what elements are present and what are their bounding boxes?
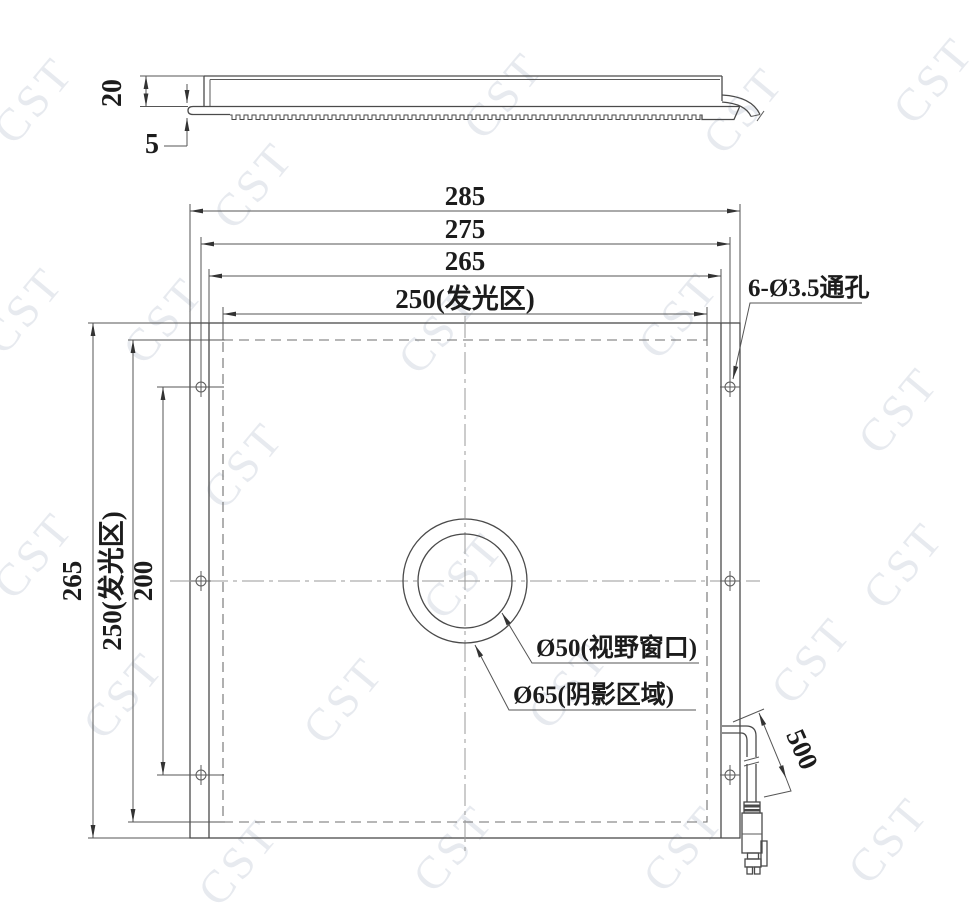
watermark-text: CST [193,412,294,519]
plate-left-cap [188,107,230,115]
connector-foot [745,859,761,867]
dim-500-label: 500 [780,725,824,774]
watermark-text: CST [0,257,74,364]
window-callout-label: Ø50(视野窗口) [536,633,697,662]
watermark-text: CST [633,795,734,902]
watermark-text: CST [188,809,289,906]
drawing-canvas: CST CST CST CST CST CST CST CST CST CST … [0,0,974,906]
connector-prong [747,867,753,874]
watermark-text: CST [693,57,794,164]
connector [742,802,767,874]
watermark-text: CST [761,607,862,714]
mounting-hole [720,571,740,591]
mounting-hole [720,765,740,785]
watermark-text: CST [453,42,554,149]
watermark-text: CST [413,522,514,629]
cable-outer-line [722,726,756,757]
connector-prong [755,867,761,874]
watermark-text: CST [113,267,214,374]
ext-line-500-bottom [764,778,791,797]
connector-band [745,809,760,812]
cable-lower-segment [747,764,756,802]
watermark-text: CST [0,47,84,154]
connector-neck [748,853,759,859]
watermark-text: CST [838,787,939,894]
mounting-hole [191,571,211,591]
dim-285-label: 285 [445,181,486,211]
holes-callout-label: 6-Ø3.5通孔 [748,274,870,302]
dim-265-label: 265 [445,246,486,276]
watermark-text: CST [203,132,304,239]
connector-band [745,805,760,808]
dim-250-emitting-label: 250(发光区) [395,283,534,314]
technical-drawing-page: CST CST CST CST CST CST CST CST CST CST … [0,0,974,906]
watermark-text: CST [73,642,174,749]
cable-inner-line [722,733,747,757]
watermark-text: CST [848,357,949,464]
diffuser-teeth [230,115,702,121]
side-view-dimensions: 20 5 [97,76,204,160]
dim-275-label: 275 [445,214,486,244]
shadow-callout-label: Ø65(阴影区域) [513,681,674,709]
dim-v200-label: 200 [128,561,158,602]
watermark-text: CST [853,512,954,619]
window-callout: Ø50(视野窗口) [502,613,699,663]
connector-body [742,813,762,853]
side-view: 20 5 [97,76,764,160]
dim-v265-label: 265 [57,561,87,602]
watermark-text: CST [883,27,974,134]
dim-line-500 [759,713,786,778]
dim-5-label: 5 [145,129,159,160]
holes-callout: 6-Ø3.5通孔 [733,274,870,379]
dim-20-label: 20 [97,79,128,107]
watermark-text: CST [628,262,729,369]
cable-break-marks [744,757,759,766]
dim-v250-emitting-label: 250(发光区) [96,511,127,650]
holes-callout-leader [733,303,862,379]
watermark-text: CST [403,795,504,902]
ext-line-500-top [733,709,764,722]
watermark-text: CST [293,647,394,754]
